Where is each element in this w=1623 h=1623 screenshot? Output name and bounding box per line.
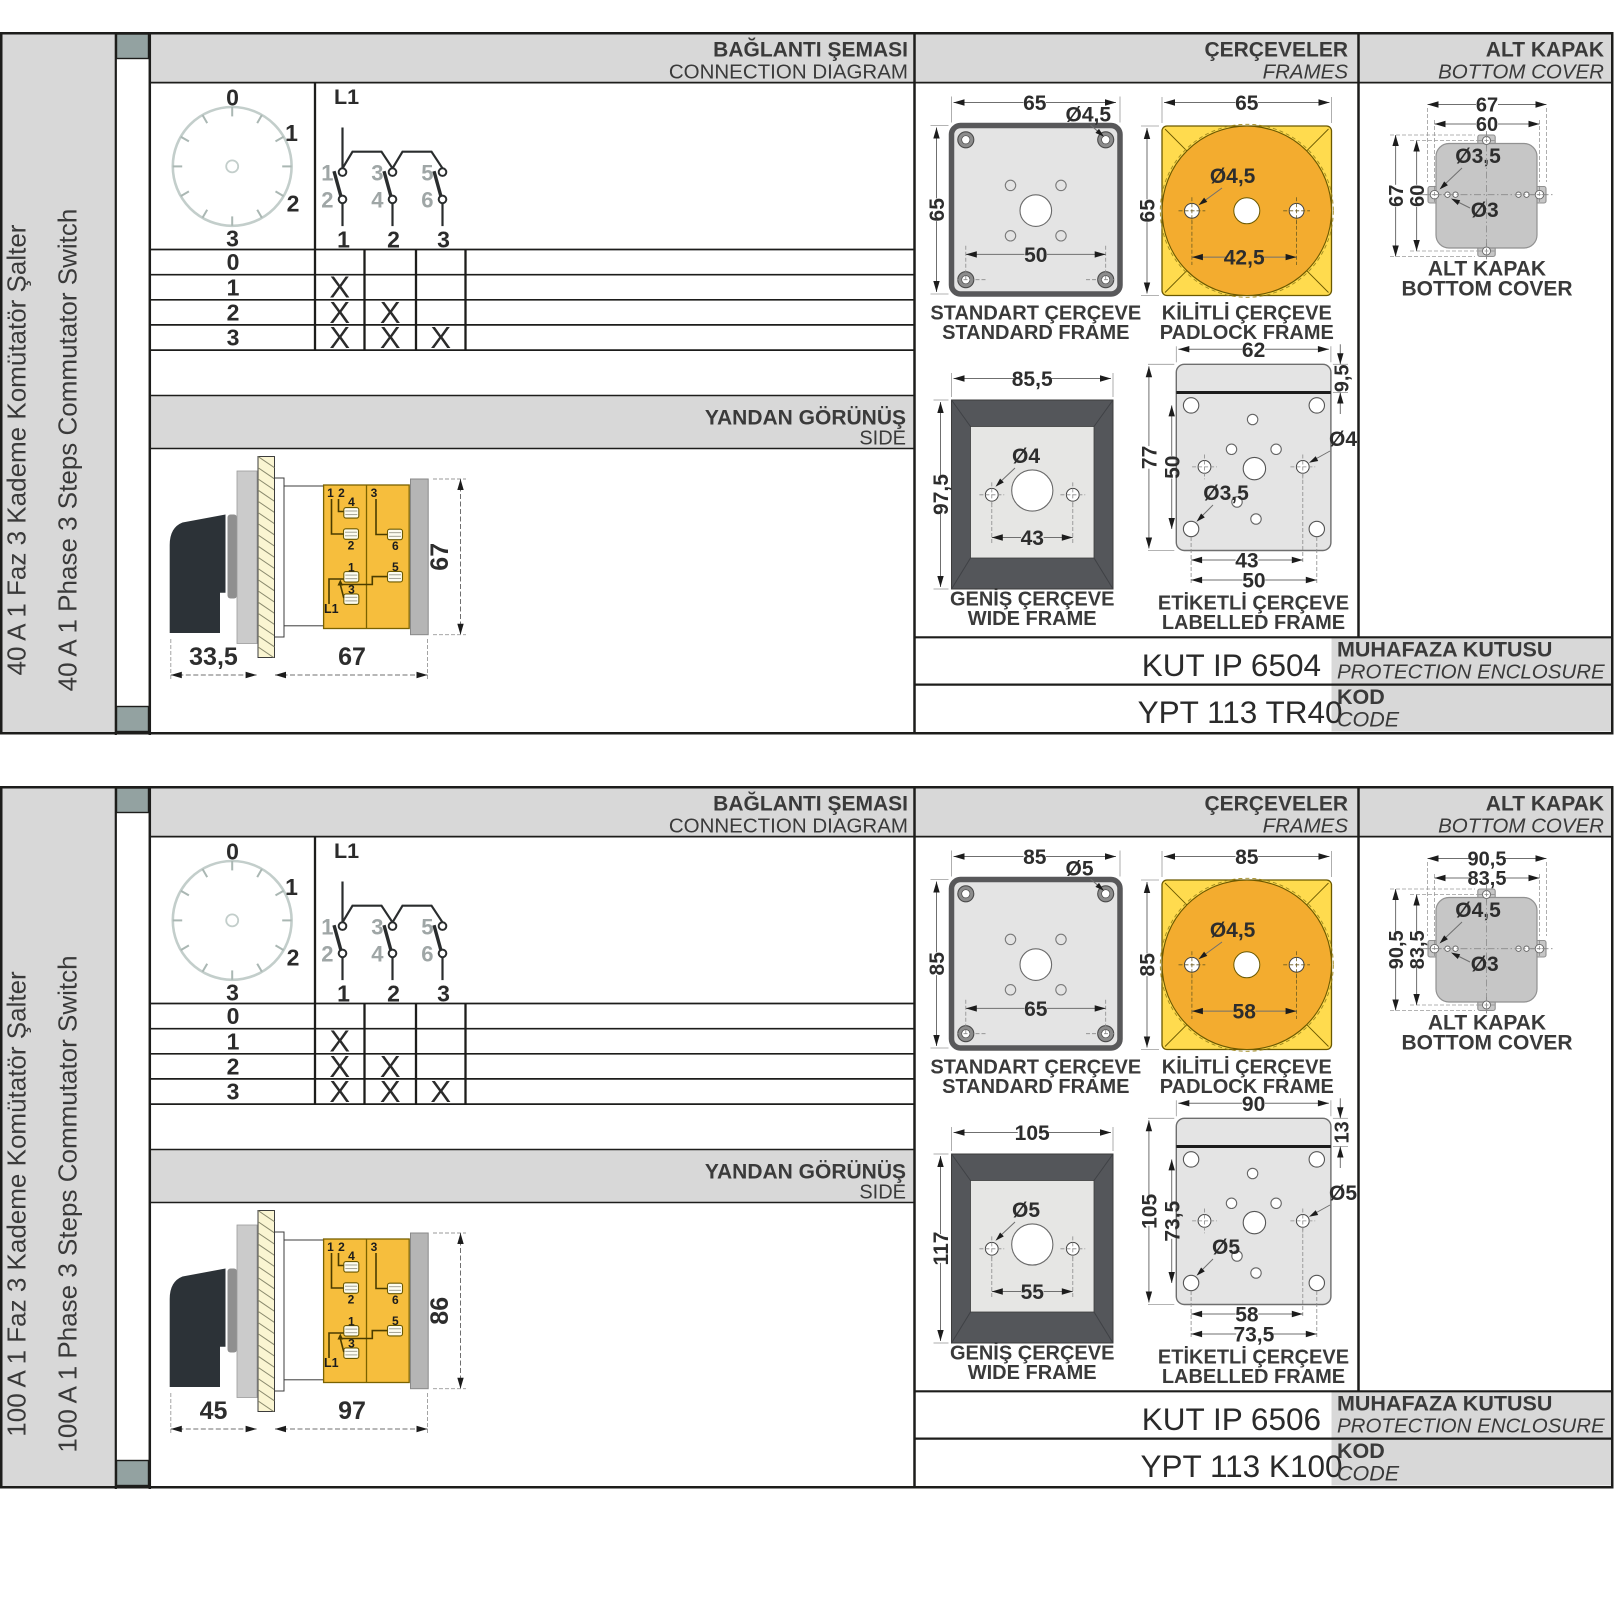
svg-text:FRAMES: FRAMES xyxy=(1263,60,1349,83)
svg-text:WIDE FRAME: WIDE FRAME xyxy=(968,608,1097,630)
svg-text:2: 2 xyxy=(348,1292,355,1306)
svg-text:117: 117 xyxy=(930,1231,953,1265)
svg-text:MUHAFAZA KUTUSU: MUHAFAZA KUTUSU xyxy=(1337,1391,1552,1415)
svg-text:67: 67 xyxy=(338,643,366,671)
svg-text:6: 6 xyxy=(392,1293,399,1307)
svg-text:1: 1 xyxy=(327,1240,334,1254)
svg-text:1: 1 xyxy=(337,226,350,252)
svg-text:100 A 1 Phase 3 Steps Commutat: 100 A 1 Phase 3 Steps Commutator Switch xyxy=(53,955,83,1452)
svg-text:65: 65 xyxy=(1137,198,1160,222)
svg-text:KOD: KOD xyxy=(1337,685,1385,709)
svg-text:X: X xyxy=(380,319,401,354)
svg-text:40 A 1 Phase 3 Steps Commutato: 40 A 1 Phase 3 Steps Commutator Switch xyxy=(53,208,83,691)
svg-text:85: 85 xyxy=(1235,846,1259,869)
svg-text:5: 5 xyxy=(392,560,399,574)
svg-text:KUT IP 6504: KUT IP 6504 xyxy=(1142,647,1321,683)
svg-text:Ø3,5: Ø3,5 xyxy=(1455,145,1501,168)
svg-text:65: 65 xyxy=(1024,998,1048,1021)
svg-text:WIDE FRAME: WIDE FRAME xyxy=(968,1362,1097,1384)
svg-text:BOTTOM COVER: BOTTOM COVER xyxy=(1401,1031,1572,1054)
svg-text:YANDAN GÖRÜNÜŞ: YANDAN GÖRÜNÜŞ xyxy=(705,1160,906,1183)
svg-text:CONNECTION DIAGRAM: CONNECTION DIAGRAM xyxy=(669,60,908,83)
svg-text:1: 1 xyxy=(285,874,298,900)
svg-text:2: 2 xyxy=(338,486,345,500)
svg-text:ÇERÇEVELER: ÇERÇEVELER xyxy=(1204,792,1348,815)
svg-text:50: 50 xyxy=(1024,244,1047,267)
svg-text:5: 5 xyxy=(392,1314,399,1328)
svg-text:YANDAN GÖRÜNÜŞ: YANDAN GÖRÜNÜŞ xyxy=(705,406,906,429)
svg-text:Ø4,5: Ø4,5 xyxy=(1066,103,1112,126)
svg-text:GENİŞ ÇERÇEVE: GENİŞ ÇERÇEVE xyxy=(950,587,1114,610)
svg-text:67: 67 xyxy=(426,542,454,570)
svg-text:1: 1 xyxy=(285,120,298,146)
svg-text:0: 0 xyxy=(226,838,239,864)
svg-text:3: 3 xyxy=(437,226,450,252)
svg-text:90,5: 90,5 xyxy=(1386,930,1408,969)
svg-text:85: 85 xyxy=(1023,846,1047,869)
svg-text:CONNECTION DIAGRAM: CONNECTION DIAGRAM xyxy=(669,814,908,837)
svg-text:2: 2 xyxy=(287,190,300,216)
svg-text:L1: L1 xyxy=(334,85,359,109)
svg-text:83,5: 83,5 xyxy=(1407,930,1429,969)
svg-text:45: 45 xyxy=(200,1397,228,1425)
svg-text:83,5: 83,5 xyxy=(1468,868,1507,890)
svg-text:1: 1 xyxy=(227,1028,240,1054)
svg-text:4: 4 xyxy=(348,1249,355,1263)
svg-text:3: 3 xyxy=(371,486,378,500)
svg-text:0: 0 xyxy=(226,84,239,110)
svg-text:MUHAFAZA KUTUSU: MUHAFAZA KUTUSU xyxy=(1337,637,1552,661)
svg-text:ETİKETLİ ÇERÇEVE: ETİKETLİ ÇERÇEVE xyxy=(1158,591,1349,614)
svg-text:13: 13 xyxy=(1332,1121,1354,1143)
svg-text:1: 1 xyxy=(321,914,333,939)
svg-text:0: 0 xyxy=(227,1003,240,1029)
svg-text:ALT KAPAK: ALT KAPAK xyxy=(1486,792,1604,815)
svg-text:55: 55 xyxy=(1021,1281,1045,1304)
svg-text:1: 1 xyxy=(348,1314,355,1328)
svg-text:5: 5 xyxy=(421,914,433,939)
svg-text:4: 4 xyxy=(348,495,355,509)
svg-text:0: 0 xyxy=(227,249,240,275)
svg-text:6: 6 xyxy=(392,539,399,553)
svg-text:1: 1 xyxy=(337,980,350,1006)
svg-text:X: X xyxy=(430,319,451,354)
svg-text:ÇERÇEVELER: ÇERÇEVELER xyxy=(1204,38,1348,61)
svg-text:Ø4,5: Ø4,5 xyxy=(1210,165,1256,188)
svg-text:85: 85 xyxy=(1137,952,1160,976)
svg-text:73,5: 73,5 xyxy=(1161,1200,1184,1241)
svg-text:1: 1 xyxy=(321,160,333,185)
svg-text:YPT 113 TR40: YPT 113 TR40 xyxy=(1138,694,1343,730)
svg-text:KUT IP 6506: KUT IP 6506 xyxy=(1142,1401,1321,1437)
svg-text:Ø4,5: Ø4,5 xyxy=(1210,919,1256,942)
svg-text:85: 85 xyxy=(926,951,949,975)
svg-text:2: 2 xyxy=(227,1053,240,1079)
svg-text:Ø4: Ø4 xyxy=(1012,445,1040,468)
svg-text:3: 3 xyxy=(371,914,383,939)
svg-text:62: 62 xyxy=(1242,338,1265,361)
svg-text:SIDE: SIDE xyxy=(859,1181,906,1203)
svg-text:Ø4: Ø4 xyxy=(1329,428,1357,451)
svg-text:2: 2 xyxy=(348,538,355,552)
svg-text:2: 2 xyxy=(387,226,400,252)
svg-text:85,5: 85,5 xyxy=(1012,368,1053,391)
svg-text:ALT KAPAK: ALT KAPAK xyxy=(1486,38,1604,61)
svg-text:40 A 1 Faz 3 Kademe Komütatör: 40 A 1 Faz 3 Kademe Komütatör Şalter xyxy=(2,224,32,675)
svg-text:L1: L1 xyxy=(324,1356,339,1370)
svg-text:50: 50 xyxy=(1242,569,1265,592)
svg-text:PROTECTION ENCLOSURE: PROTECTION ENCLOSURE xyxy=(1337,660,1605,683)
svg-text:60: 60 xyxy=(1407,184,1429,206)
svg-text:BAĞLANTI ŞEMASI: BAĞLANTI ŞEMASI xyxy=(713,791,908,815)
svg-text:77: 77 xyxy=(1139,445,1162,468)
svg-text:90: 90 xyxy=(1242,1092,1265,1115)
svg-text:6: 6 xyxy=(421,941,433,966)
svg-text:STANDARD FRAME: STANDARD FRAME xyxy=(942,1075,1129,1097)
svg-text:3: 3 xyxy=(227,324,240,350)
svg-text:9,5: 9,5 xyxy=(1332,364,1354,392)
svg-text:X: X xyxy=(430,1073,451,1108)
svg-text:SIDE: SIDE xyxy=(859,427,906,449)
svg-text:105: 105 xyxy=(1139,1193,1162,1228)
svg-text:LABELLED FRAME: LABELLED FRAME xyxy=(1162,1366,1345,1388)
svg-text:105: 105 xyxy=(1015,1122,1050,1145)
svg-text:L1: L1 xyxy=(324,602,339,616)
svg-text:1: 1 xyxy=(348,560,355,574)
svg-text:LABELLED FRAME: LABELLED FRAME xyxy=(1162,612,1345,634)
svg-text:58: 58 xyxy=(1233,1000,1257,1023)
svg-text:73,5: 73,5 xyxy=(1233,1323,1274,1346)
svg-text:X: X xyxy=(329,319,350,354)
svg-text:Ø5: Ø5 xyxy=(1329,1182,1357,1205)
svg-text:3: 3 xyxy=(226,225,239,251)
svg-text:97: 97 xyxy=(338,1397,366,1425)
svg-text:3: 3 xyxy=(437,980,450,1006)
svg-text:CODE: CODE xyxy=(1337,707,1400,731)
svg-text:Ø5: Ø5 xyxy=(1012,1199,1040,1222)
svg-text:KOD: KOD xyxy=(1337,1439,1385,1463)
svg-text:42,5: 42,5 xyxy=(1224,246,1265,269)
svg-text:Ø5: Ø5 xyxy=(1066,857,1094,880)
svg-text:5: 5 xyxy=(421,160,433,185)
svg-text:CODE: CODE xyxy=(1337,1461,1400,1485)
svg-text:2: 2 xyxy=(338,1240,345,1254)
svg-text:3: 3 xyxy=(227,1078,240,1104)
svg-text:65: 65 xyxy=(926,197,949,221)
svg-text:BOTTOM COVER: BOTTOM COVER xyxy=(1438,60,1604,83)
svg-text:STANDARD FRAME: STANDARD FRAME xyxy=(942,321,1129,343)
svg-text:65: 65 xyxy=(1023,92,1047,115)
svg-text:BAĞLANTI ŞEMASI: BAĞLANTI ŞEMASI xyxy=(713,37,908,61)
svg-text:50: 50 xyxy=(1161,455,1184,478)
svg-text:67: 67 xyxy=(1386,184,1408,206)
svg-text:Ø3: Ø3 xyxy=(1471,199,1499,222)
svg-text:97,5: 97,5 xyxy=(930,473,953,514)
svg-text:65: 65 xyxy=(1235,92,1259,115)
svg-text:Ø3: Ø3 xyxy=(1471,953,1499,976)
svg-text:BOTTOM COVER: BOTTOM COVER xyxy=(1438,814,1604,837)
svg-text:X: X xyxy=(380,1073,401,1108)
svg-text:3: 3 xyxy=(226,979,239,1005)
svg-text:60: 60 xyxy=(1476,114,1498,136)
svg-text:3: 3 xyxy=(371,1240,378,1254)
svg-text:KİLİTLİ ÇERÇEVE: KİLİTLİ ÇERÇEVE xyxy=(1162,1055,1332,1078)
svg-text:YPT 113 K100: YPT 113 K100 xyxy=(1141,1448,1343,1484)
svg-text:ETİKETLİ ÇERÇEVE: ETİKETLİ ÇERÇEVE xyxy=(1158,1345,1349,1368)
svg-text:2: 2 xyxy=(321,941,333,966)
svg-text:6: 6 xyxy=(421,187,433,212)
svg-text:2: 2 xyxy=(387,980,400,1006)
svg-text:2: 2 xyxy=(287,944,300,970)
svg-text:KİLİTLİ ÇERÇEVE: KİLİTLİ ÇERÇEVE xyxy=(1162,301,1332,324)
svg-text:4: 4 xyxy=(371,187,384,212)
svg-text:4: 4 xyxy=(371,941,384,966)
svg-text:1: 1 xyxy=(227,274,240,300)
svg-text:X: X xyxy=(329,1073,350,1108)
svg-text:100 A 1 Faz 3 Kademe Komütatör: 100 A 1 Faz 3 Kademe Komütatör Şalter xyxy=(2,970,32,1436)
svg-text:3: 3 xyxy=(371,160,383,185)
svg-text:2: 2 xyxy=(321,187,333,212)
svg-text:GENİŞ ÇERÇEVE: GENİŞ ÇERÇEVE xyxy=(950,1341,1114,1364)
svg-text:FRAMES: FRAMES xyxy=(1263,814,1349,837)
svg-text:L1: L1 xyxy=(334,839,359,863)
svg-text:33,5: 33,5 xyxy=(189,643,238,671)
svg-text:43: 43 xyxy=(1021,527,1044,550)
svg-text:BOTTOM COVER: BOTTOM COVER xyxy=(1401,277,1572,300)
svg-text:1: 1 xyxy=(327,486,334,500)
svg-text:Ø4,5: Ø4,5 xyxy=(1455,899,1501,922)
svg-text:2: 2 xyxy=(227,299,240,325)
svg-text:PROTECTION ENCLOSURE: PROTECTION ENCLOSURE xyxy=(1337,1414,1605,1437)
svg-text:86: 86 xyxy=(426,1296,454,1324)
svg-text:Ø3,5: Ø3,5 xyxy=(1203,482,1249,505)
svg-text:Ø5: Ø5 xyxy=(1212,1236,1240,1259)
